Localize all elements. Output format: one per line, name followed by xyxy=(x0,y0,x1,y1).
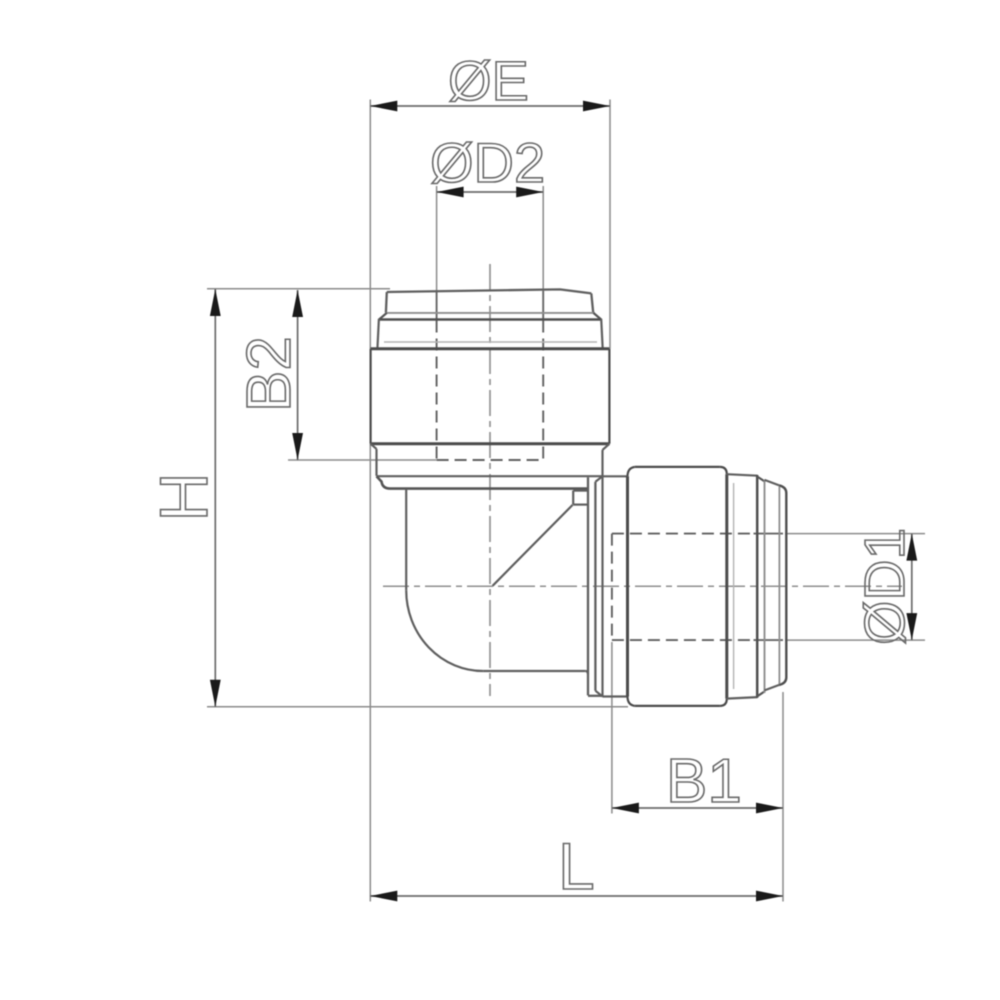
svg-text:ØD1: ØD1 xyxy=(853,528,917,645)
svg-text:L: L xyxy=(558,829,595,903)
svg-text:H: H xyxy=(146,472,222,521)
svg-text:ØD2: ØD2 xyxy=(430,131,545,194)
svg-text:B2: B2 xyxy=(235,336,304,412)
svg-text:ØE: ØE xyxy=(448,49,529,112)
svg-text:B1: B1 xyxy=(666,747,742,816)
